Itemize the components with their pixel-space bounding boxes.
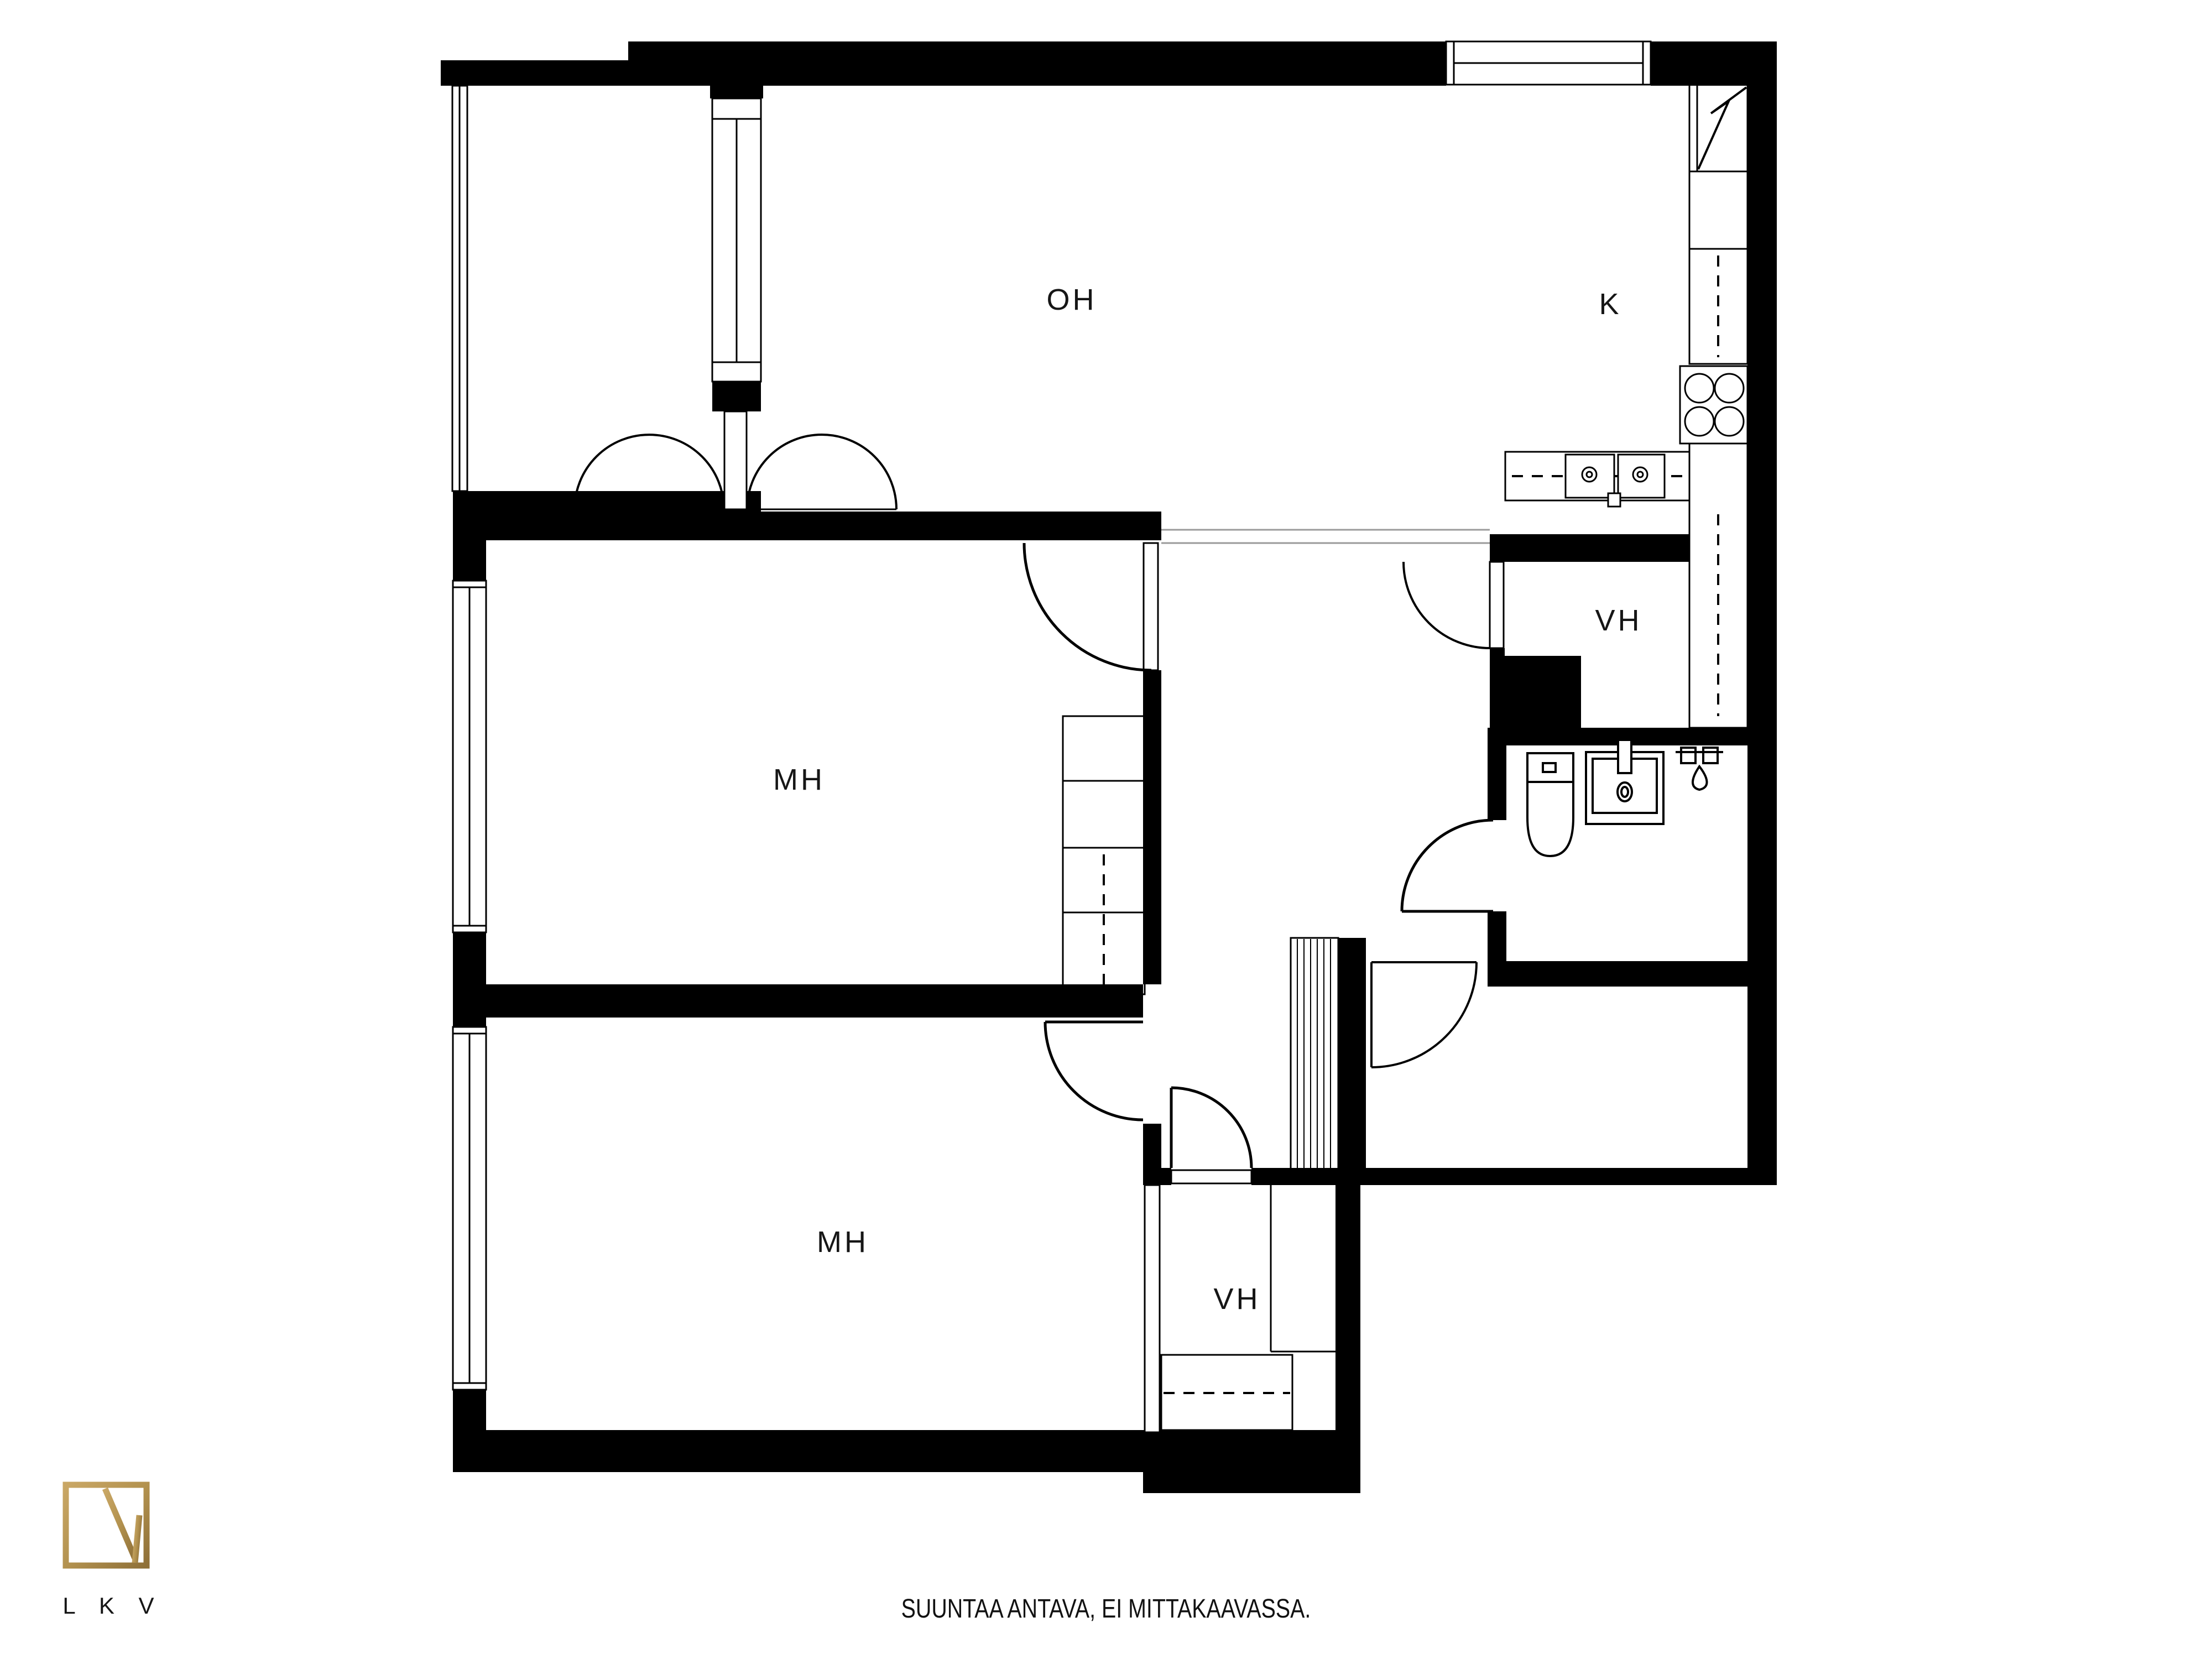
wall-kitchen-bottom [1490,534,1689,562]
stove-4-burner-icon [1680,366,1747,444]
wall-mh1-right-upper [1143,670,1161,984]
kitchen-tall-cabinet [1689,249,1747,364]
vh1-cabinet-column [1689,444,1747,728]
wall-glazing-bottom-stub [712,382,761,411]
wall-glazing-top-stub [710,86,763,98]
entry-door-post [724,411,747,509]
wall-bathroom-bottom [1488,961,1747,987]
room-labels: OH K MH MH VH VH [773,283,1642,1316]
door-swing-icon-vh1 [1404,562,1504,648]
shower-tap-icon [1676,748,1723,790]
window-icon-mh1 [453,581,486,932]
hall-glass-wall [452,86,467,491]
disclaimer-text: SUUNTAA ANTAVA, EI MITTAKAAVASSA. [199,1594,2013,1624]
room-label-vh1: VH [1595,604,1642,637]
room-label-mh2: MH [817,1225,869,1259]
windows [452,41,1651,1390]
door-swing-icon-vh2 [1171,1088,1251,1183]
room-label-mh1: MH [773,763,825,796]
walls [441,41,1777,1493]
wardrobe-icon-mh1 [1063,716,1145,994]
bathroom-fixtures [1527,740,1723,856]
wall-bottom-exterior-right [1143,1430,1360,1493]
wall-top-livingroom [628,41,1446,86]
wall-mh1-right-lower [1143,1124,1161,1168]
room-label-oh: OH [1047,283,1097,316]
glazing-partition-hall [712,98,761,382]
floorplan-drawing: OH K MH MH VH VH [0,0,2212,1659]
brand-logo-icon [62,1481,150,1569]
wall-bottom-exterior-left [453,1430,1161,1472]
kitchen-double-sink-icon [1505,452,1689,507]
door-swing-icon-bathroom [1402,820,1493,911]
wall-vh1-corner-block [1490,656,1581,728]
wall-livingroom-bottom [761,512,1161,540]
storage-units [1063,716,1338,1432]
washbasin-icon [1586,740,1663,824]
room-boundary-lines [1161,530,1490,543]
wall-bathroom-left-upper [1488,745,1506,820]
wall-hall-bottom [453,491,761,540]
ventilation-shaft-icon [1291,938,1338,1181]
wall-beside-shaft [1338,938,1366,1172]
door-swing-icon-lobby [1371,962,1477,1067]
fridge-freezer-icon [1689,85,1747,171]
toilet-icon [1527,753,1573,856]
room-label-k: K [1599,288,1621,321]
window-icon-mh2 [453,1027,486,1390]
logo-caption: L K V [53,1593,164,1619]
window-icon-kitchen [1446,41,1651,85]
door-swing-icon-mh2 [1045,1022,1143,1120]
door-swing-icon-mh1 [1024,543,1158,670]
wall-corridor-bottom-right [1366,1168,1777,1185]
floorplan-page: OH K MH MH VH VH L K V SUUNTAA ANTAVA, E… [0,0,2212,1659]
wall-right-exterior [1747,41,1777,1185]
wall-bedroom-divider [453,984,1143,1018]
wall-corridor-bottom-left [1143,1168,1171,1185]
room-label-vh2: VH [1213,1282,1260,1316]
wall-vh2-right [1335,1185,1360,1453]
kitchen-cabinet [1689,171,1747,249]
